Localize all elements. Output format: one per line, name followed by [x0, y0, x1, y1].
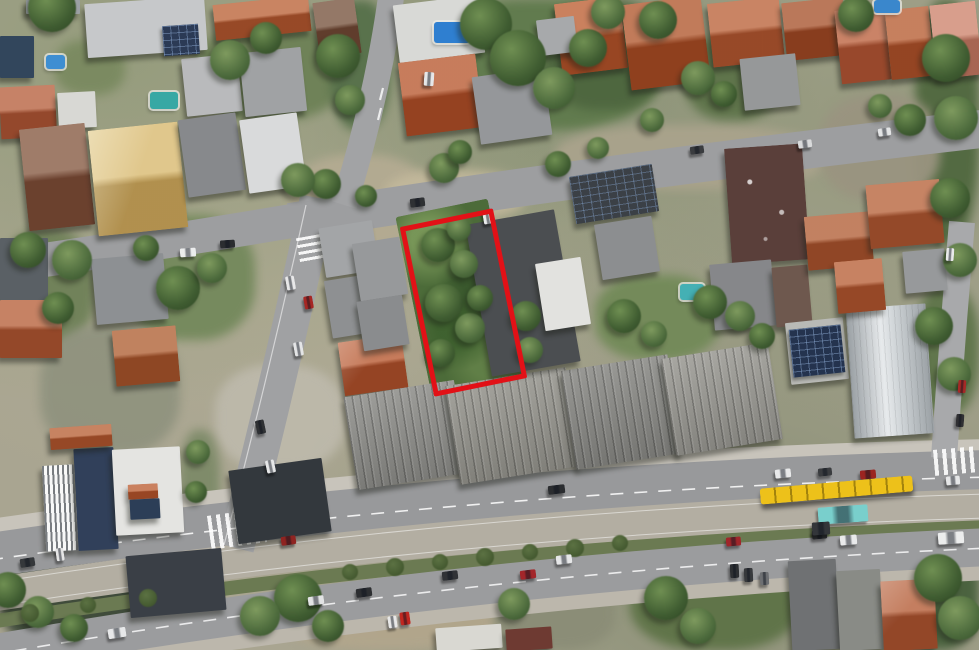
van-white: [180, 247, 197, 257]
tree: [312, 610, 344, 642]
building: [594, 216, 660, 280]
building: [356, 295, 409, 352]
tree: [355, 185, 377, 207]
tree: [868, 94, 892, 118]
tree: [52, 240, 92, 280]
car-red: [726, 536, 742, 546]
median-bush: [522, 544, 538, 560]
building: [505, 626, 552, 650]
car-parked-white: [55, 548, 65, 562]
building: [125, 548, 226, 618]
truck-teal-cab: [812, 521, 831, 535]
tree: [335, 85, 365, 115]
tree: [639, 1, 677, 39]
car-white: [946, 475, 961, 485]
tree: [640, 108, 664, 132]
tree: [922, 34, 970, 82]
tree: [644, 576, 688, 620]
tree: [316, 34, 360, 78]
car-dark: [220, 239, 236, 248]
tree: [10, 232, 46, 268]
tree: [749, 323, 775, 349]
car-parked-white: [387, 615, 398, 628]
car-dark: [410, 197, 426, 208]
tree: [250, 22, 282, 54]
building: [771, 265, 812, 328]
tree: [934, 96, 978, 140]
car-white: [775, 468, 792, 479]
tree: [545, 151, 571, 177]
building: [88, 122, 189, 237]
building: [834, 258, 886, 314]
solar-panel: [162, 24, 200, 56]
building: [724, 143, 810, 264]
car-dark: [818, 467, 833, 476]
tree: [894, 104, 926, 136]
car-parked-red: [958, 380, 967, 394]
building: [661, 342, 783, 456]
tree: [680, 608, 716, 644]
building: [398, 54, 484, 137]
tree: [641, 321, 667, 347]
tree: [42, 292, 74, 324]
tree: [533, 67, 575, 109]
building: [902, 248, 948, 294]
swimming-pool: [150, 92, 178, 109]
building: [129, 498, 160, 520]
tree: [186, 440, 210, 464]
building: [178, 112, 246, 197]
tree: [281, 163, 315, 197]
building: [739, 53, 800, 111]
building: [788, 559, 841, 650]
building: [112, 325, 181, 386]
median-bush: [476, 548, 494, 566]
tree: [711, 81, 737, 107]
building: [0, 36, 34, 78]
tree: [930, 178, 970, 218]
tree: [197, 253, 227, 283]
solar-panel: [789, 324, 846, 377]
tree: [156, 266, 200, 310]
tree: [681, 61, 715, 95]
tree: [938, 596, 979, 640]
tree: [725, 301, 755, 331]
satellite-map: [0, 0, 979, 650]
building: [836, 569, 884, 650]
building: [435, 624, 503, 650]
building: [352, 237, 408, 302]
building: [49, 424, 112, 450]
building: [228, 458, 331, 544]
car-parked-white: [946, 248, 955, 262]
car-red: [520, 569, 537, 580]
building: [42, 464, 78, 552]
tree: [210, 40, 250, 80]
swimming-pool: [46, 55, 65, 69]
median-bush: [612, 535, 628, 551]
car-dark: [442, 570, 459, 581]
car-parked-dark: [956, 414, 965, 428]
tree: [693, 285, 727, 319]
truck-white: [938, 531, 965, 545]
car-parked-white: [424, 72, 435, 87]
tree: [448, 140, 472, 164]
tree: [311, 169, 341, 199]
median-bush: [342, 564, 358, 580]
van-white: [840, 534, 858, 545]
car-parked-gray: [760, 572, 770, 585]
median-bush: [80, 597, 96, 613]
tree: [607, 299, 641, 333]
median-bush: [139, 589, 157, 607]
tree: [60, 614, 88, 642]
swimming-pool: [874, 0, 900, 13]
median-bush: [386, 558, 404, 576]
car-parked-dark: [744, 568, 754, 582]
tree: [185, 481, 207, 503]
tree: [133, 235, 159, 261]
car-parked-red: [399, 611, 411, 625]
tree: [914, 554, 962, 602]
van-white: [556, 554, 573, 565]
tree: [240, 596, 280, 636]
tree: [569, 29, 607, 67]
tree: [915, 307, 953, 345]
tree: [587, 137, 609, 159]
crosswalk-avenue-right: [933, 446, 979, 476]
median-bush: [432, 554, 448, 570]
building: [19, 123, 95, 231]
median-bush: [21, 604, 39, 622]
tree: [498, 588, 530, 620]
car-parked-dark: [730, 564, 740, 578]
building: [128, 483, 159, 500]
